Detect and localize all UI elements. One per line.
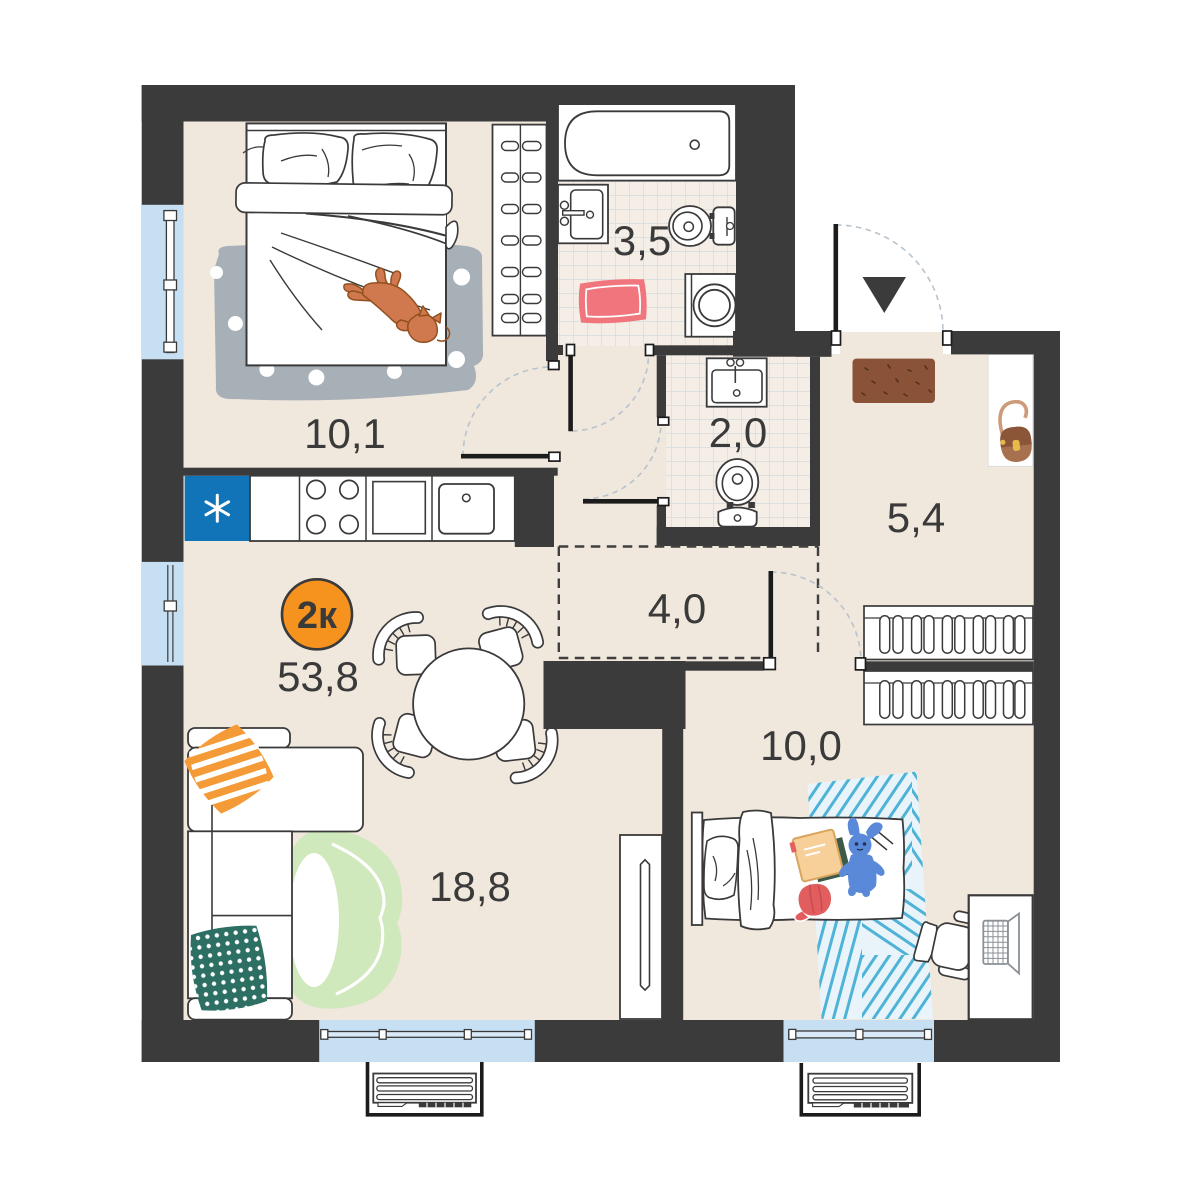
svg-text:2,0: 2,0 bbox=[709, 409, 767, 456]
svg-text:5,4: 5,4 bbox=[887, 494, 945, 541]
svg-text:10,1: 10,1 bbox=[304, 410, 386, 457]
svg-text:3,5: 3,5 bbox=[613, 217, 671, 264]
svg-text:53,8: 53,8 bbox=[277, 653, 359, 700]
svg-text:2к: 2к bbox=[297, 595, 338, 637]
svg-text:18,8: 18,8 bbox=[429, 863, 511, 910]
svg-text:4,0: 4,0 bbox=[648, 585, 706, 632]
svg-text:10,0: 10,0 bbox=[760, 722, 842, 769]
